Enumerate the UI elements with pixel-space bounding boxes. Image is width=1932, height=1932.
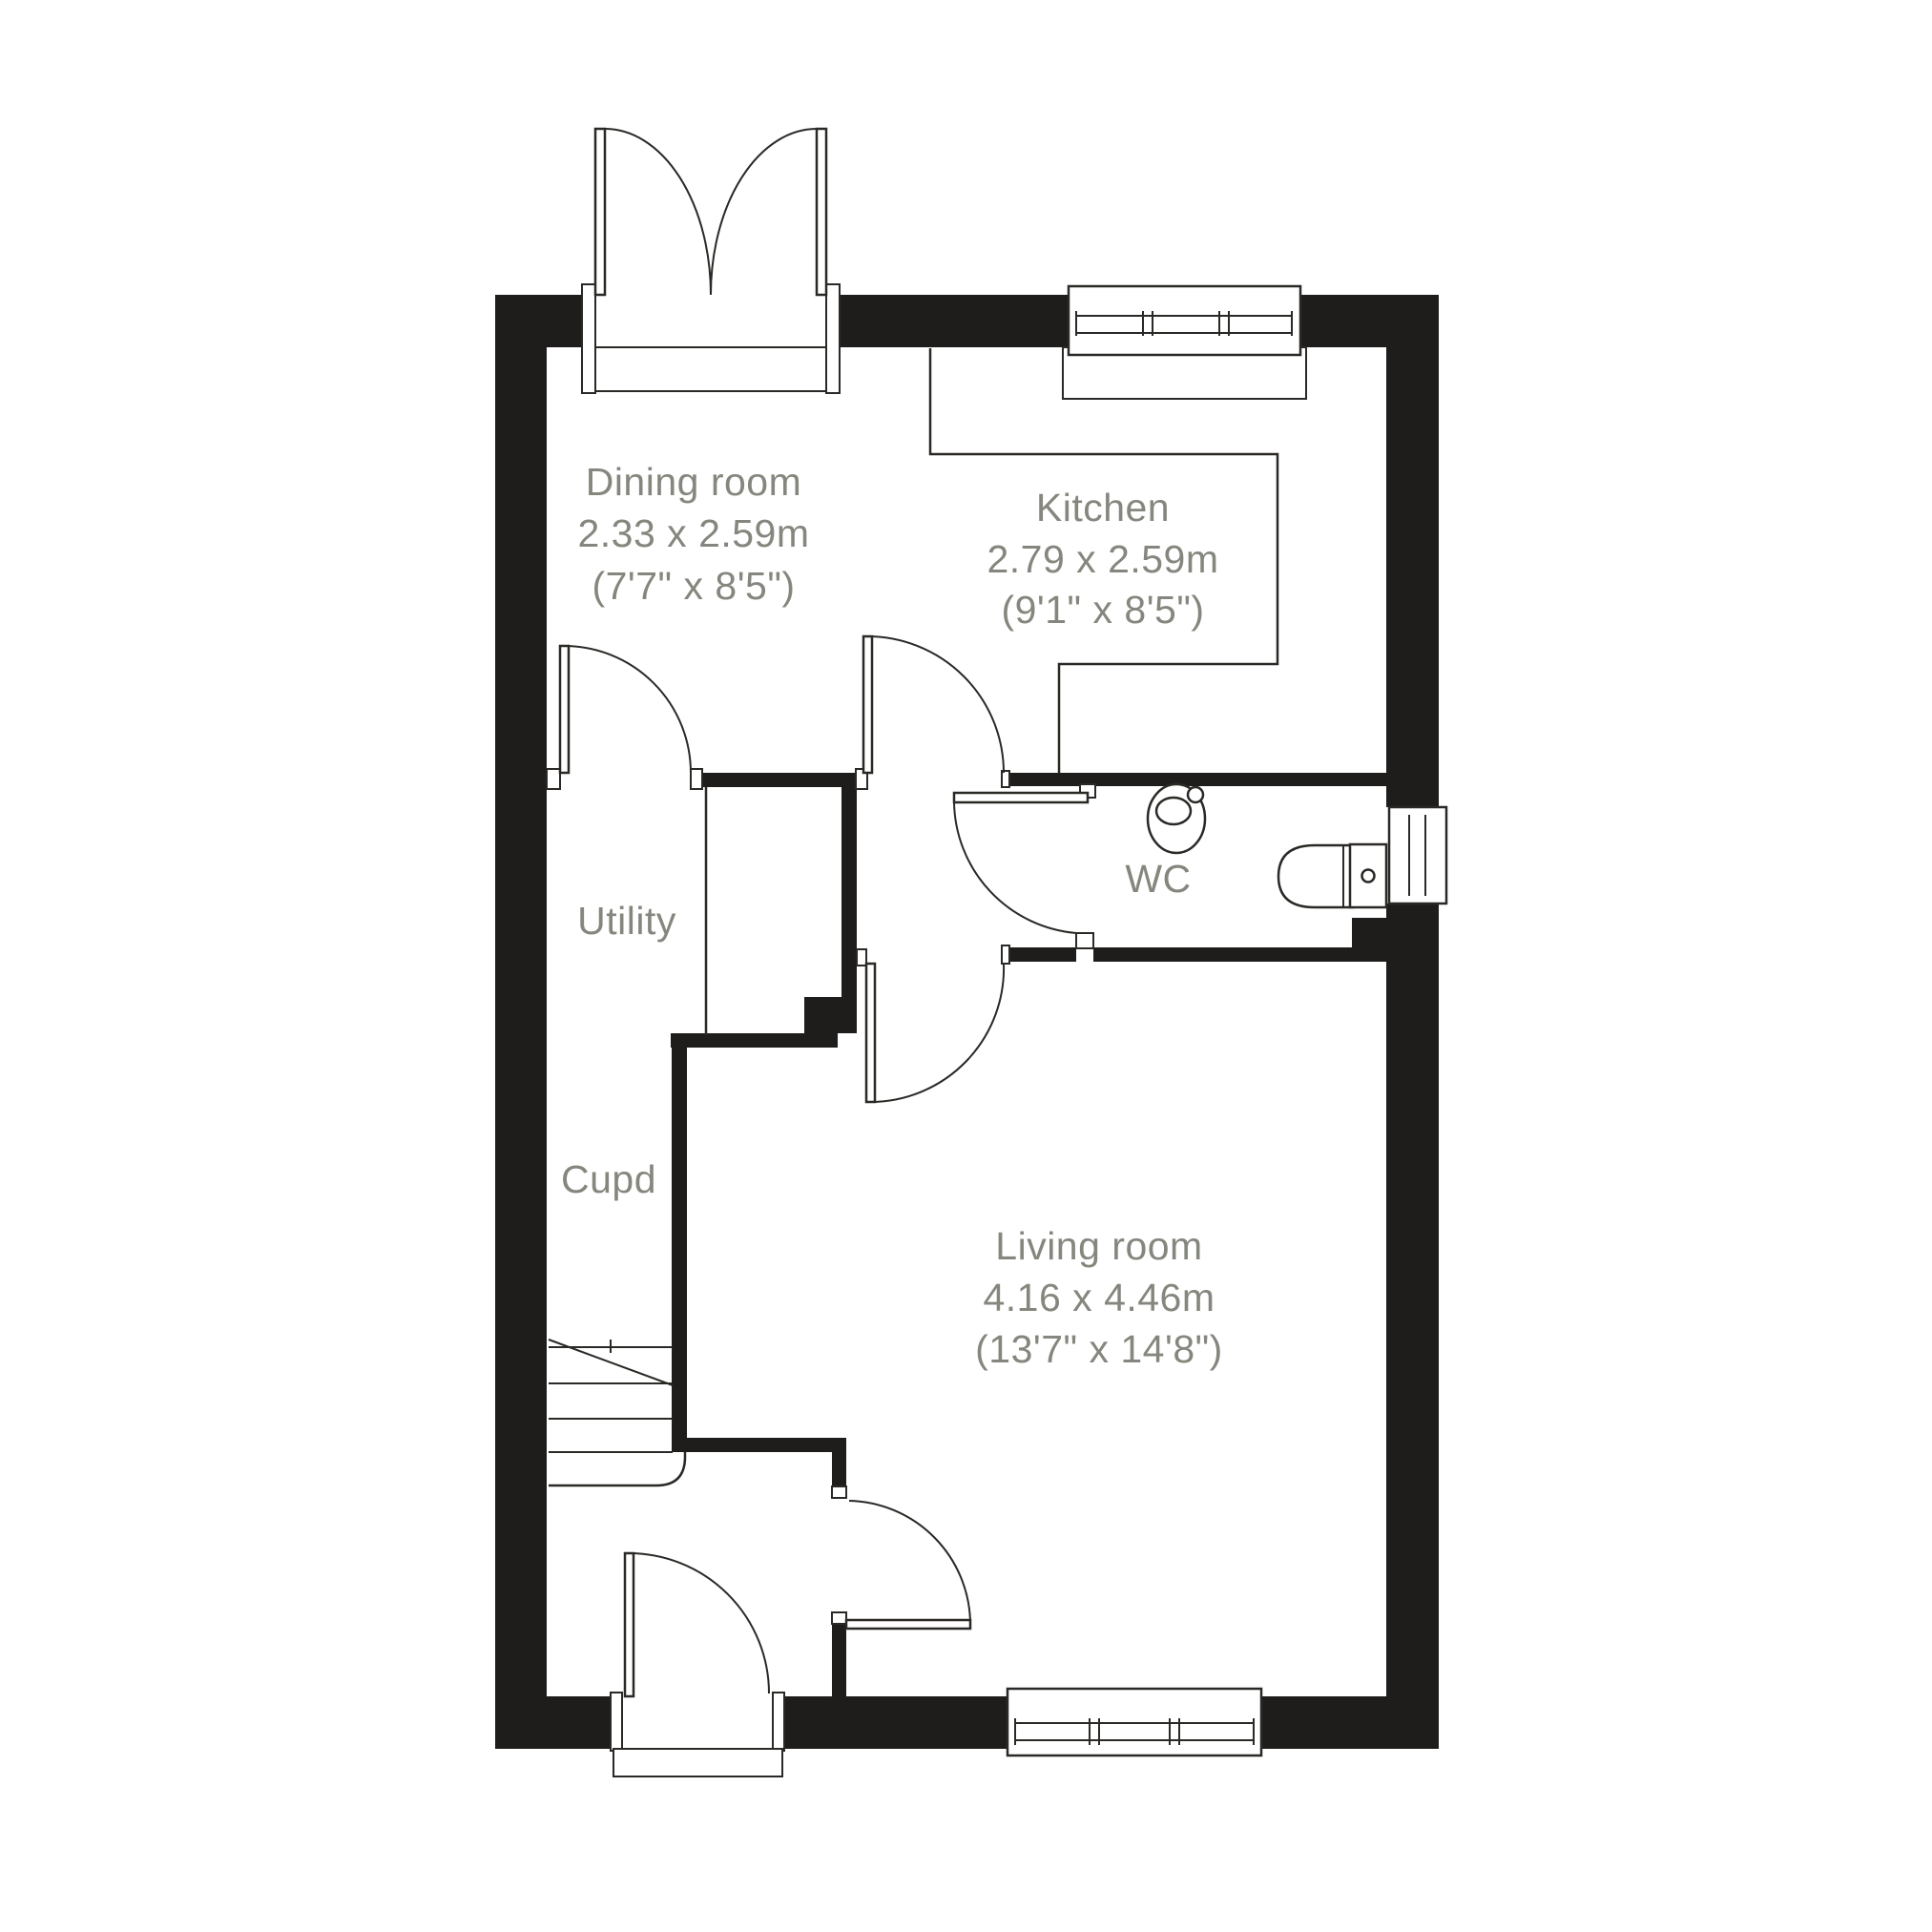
living-window [1008, 1689, 1261, 1755]
utility-door-jamb-right [691, 769, 702, 789]
floor-plan-page: Dining room 2.33 x 2.59m (7'7" x 8'5") K… [0, 0, 1932, 1932]
kitchen-imperial: (9'1" x 8'5") [1001, 588, 1204, 632]
wall-bottom-middle-segment [773, 1696, 1008, 1749]
living-bottom-door-jamb-top [832, 1486, 846, 1498]
wall-bottom-right-segment [1261, 1696, 1439, 1749]
front-door-jamb-right [773, 1693, 784, 1751]
living-door-hinge-jamb [857, 949, 866, 966]
dining-room-imperial: (7'7" x 8'5") [592, 564, 795, 608]
cupd-label: Cupd [561, 1157, 656, 1201]
utility-door-jamb-left [547, 769, 560, 789]
kitchen-window [1069, 286, 1300, 355]
living-door-leaf [866, 964, 875, 1102]
wall-bottom-left-segment [495, 1696, 622, 1749]
wall-wc-bottom-right [1093, 947, 1352, 962]
wall-stairs-bottom [687, 1438, 846, 1452]
wall-top-middle-segment [828, 295, 1069, 347]
background [0, 0, 1932, 1932]
wall-dining-utility [702, 773, 856, 787]
dining-room-metric: 2.33 x 2.59m [577, 511, 809, 555]
living-room-label: Living room [995, 1224, 1202, 1268]
french-door-jamb-right [826, 284, 840, 393]
hall-door-jamb-right [1002, 771, 1009, 787]
wall-wc-bottom-block [1352, 918, 1386, 962]
french-door-sill [595, 347, 826, 391]
wall-right-lower [1386, 904, 1439, 1749]
wall-right-upper [1386, 295, 1439, 807]
hall-door-leaf [863, 636, 872, 773]
wall-cupd-stairs [672, 1048, 687, 1452]
dining-room-label: Dining room [586, 460, 802, 504]
living-bottom-door-jamb-bottom [832, 1612, 846, 1624]
utility-label: Utility [577, 899, 676, 943]
toilet [1278, 844, 1386, 907]
wc-door-leaf [954, 793, 1088, 802]
wall-hall-step-band [671, 1033, 838, 1048]
wall-hall-strip [841, 787, 857, 997]
front-door-jamb-left [611, 1693, 622, 1751]
french-door-leaf-left [595, 129, 605, 295]
sink [1148, 784, 1205, 853]
utility-door-leaf [560, 646, 569, 773]
living-room-metric: 4.16 x 4.46m [983, 1276, 1215, 1319]
wc-label: WC [1125, 857, 1191, 901]
french-door-leaf-right [817, 129, 826, 295]
wall-entry-living-lower [832, 1622, 846, 1696]
toilet-bowl [1278, 845, 1353, 907]
wc-window [1389, 807, 1446, 904]
sink-tap [1188, 787, 1203, 802]
wc-door-latch-jamb [1076, 933, 1093, 948]
kitchen-window-box [1069, 286, 1300, 355]
front-door-leaf [625, 1553, 634, 1696]
french-door-jamb-left [582, 284, 595, 393]
front-door-sill [613, 1749, 782, 1776]
wc-wall-end-cap [1002, 945, 1009, 964]
living-bottom-door-leaf [846, 1620, 970, 1629]
wall-wc-bottom-left [1009, 947, 1076, 962]
kitchen-metric: 2.79 x 2.59m [987, 537, 1218, 581]
wc-window-box [1389, 807, 1446, 904]
kitchen-label: Kitchen [1036, 486, 1170, 530]
wall-hall-step [804, 997, 857, 1033]
wall-wc-top [1009, 773, 1386, 786]
floor-plan-drawing: Dining room 2.33 x 2.59m (7'7" x 8'5") K… [0, 0, 1932, 1932]
wall-left [495, 295, 547, 1749]
living-room-imperial: (13'7" x 14'8") [975, 1327, 1223, 1371]
toilet-flush-button [1362, 870, 1375, 883]
sink-basin-inner [1156, 798, 1191, 824]
